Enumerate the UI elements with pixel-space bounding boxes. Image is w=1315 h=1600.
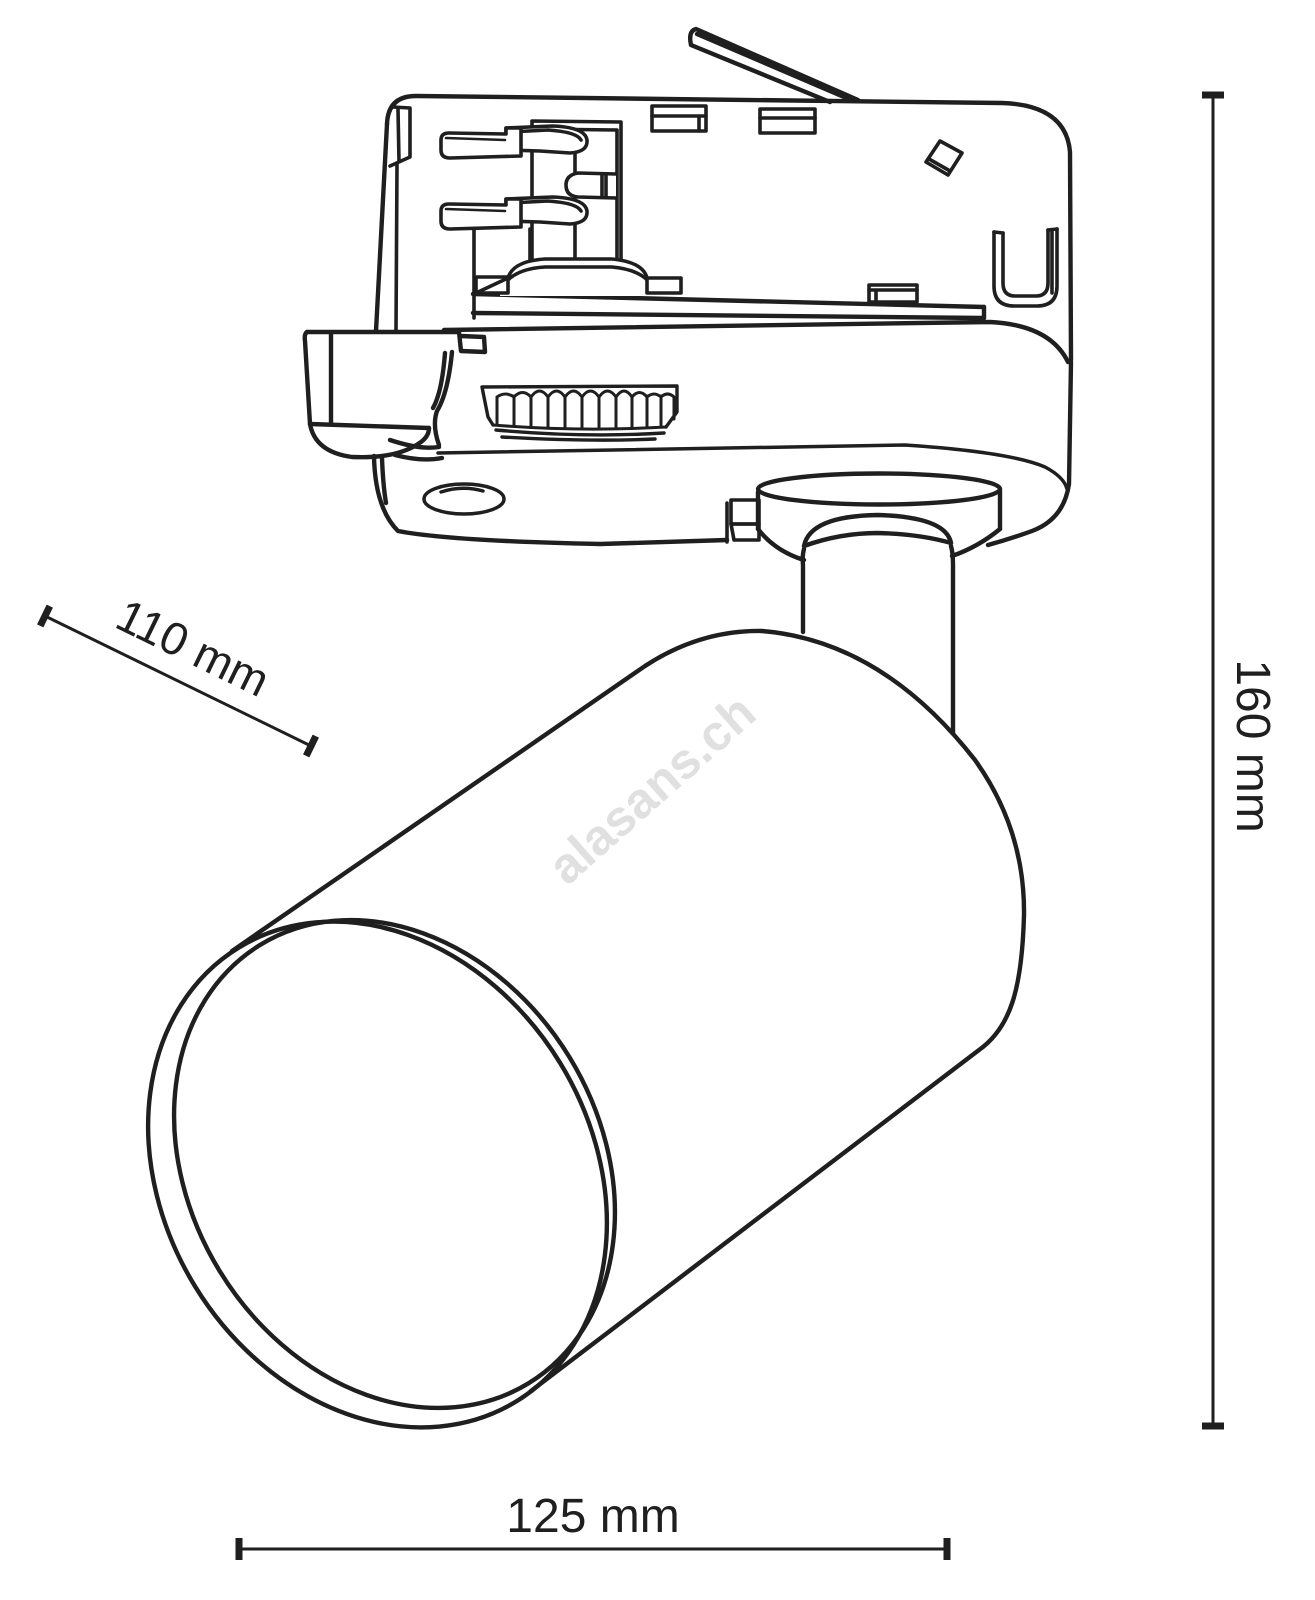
svg-text:125 mm: 125 mm [506, 1490, 679, 1543]
svg-text:160 mm: 160 mm [1226, 659, 1279, 832]
